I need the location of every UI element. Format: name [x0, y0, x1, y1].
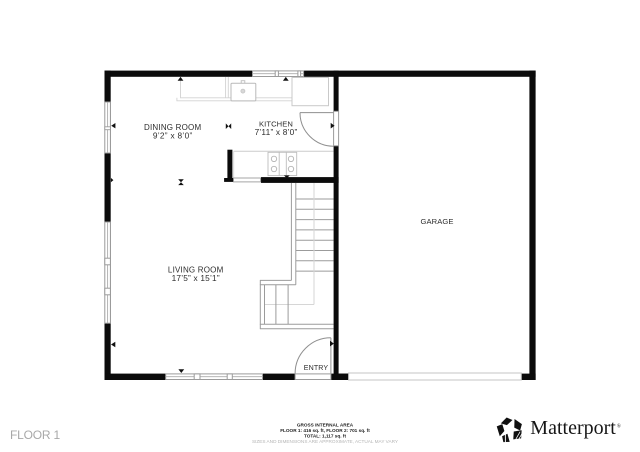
svg-text:17’5” x 15’1”: 17’5” x 15’1” [172, 273, 220, 283]
svg-text:7’11” x 8’0”: 7’11” x 8’0” [255, 127, 298, 137]
svg-text:FLOOR 1: 416 sq. ft, FLOOR 2:: FLOOR 1: 416 sq. ft, FLOOR 2: 701 sq. ft [280, 428, 370, 433]
svg-text:FLOOR 1: FLOOR 1 [10, 428, 60, 442]
svg-text:Matterport: Matterport [530, 417, 616, 439]
svg-text:GARAGE: GARAGE [420, 217, 453, 226]
svg-text:SIZES AND DIMENSIONS ARE APPRO: SIZES AND DIMENSIONS ARE APPROXIMATE, AC… [252, 439, 399, 444]
svg-text:9’2” x 8’0”: 9’2” x 8’0” [153, 131, 193, 141]
svg-text:TOTAL: 1,117 sq. ft: TOTAL: 1,117 sq. ft [304, 433, 346, 438]
svg-text:®: ® [617, 423, 621, 430]
svg-text:ENTRY: ENTRY [304, 364, 329, 372]
svg-text:GROSS INTERNAL AREA: GROSS INTERNAL AREA [297, 422, 354, 427]
